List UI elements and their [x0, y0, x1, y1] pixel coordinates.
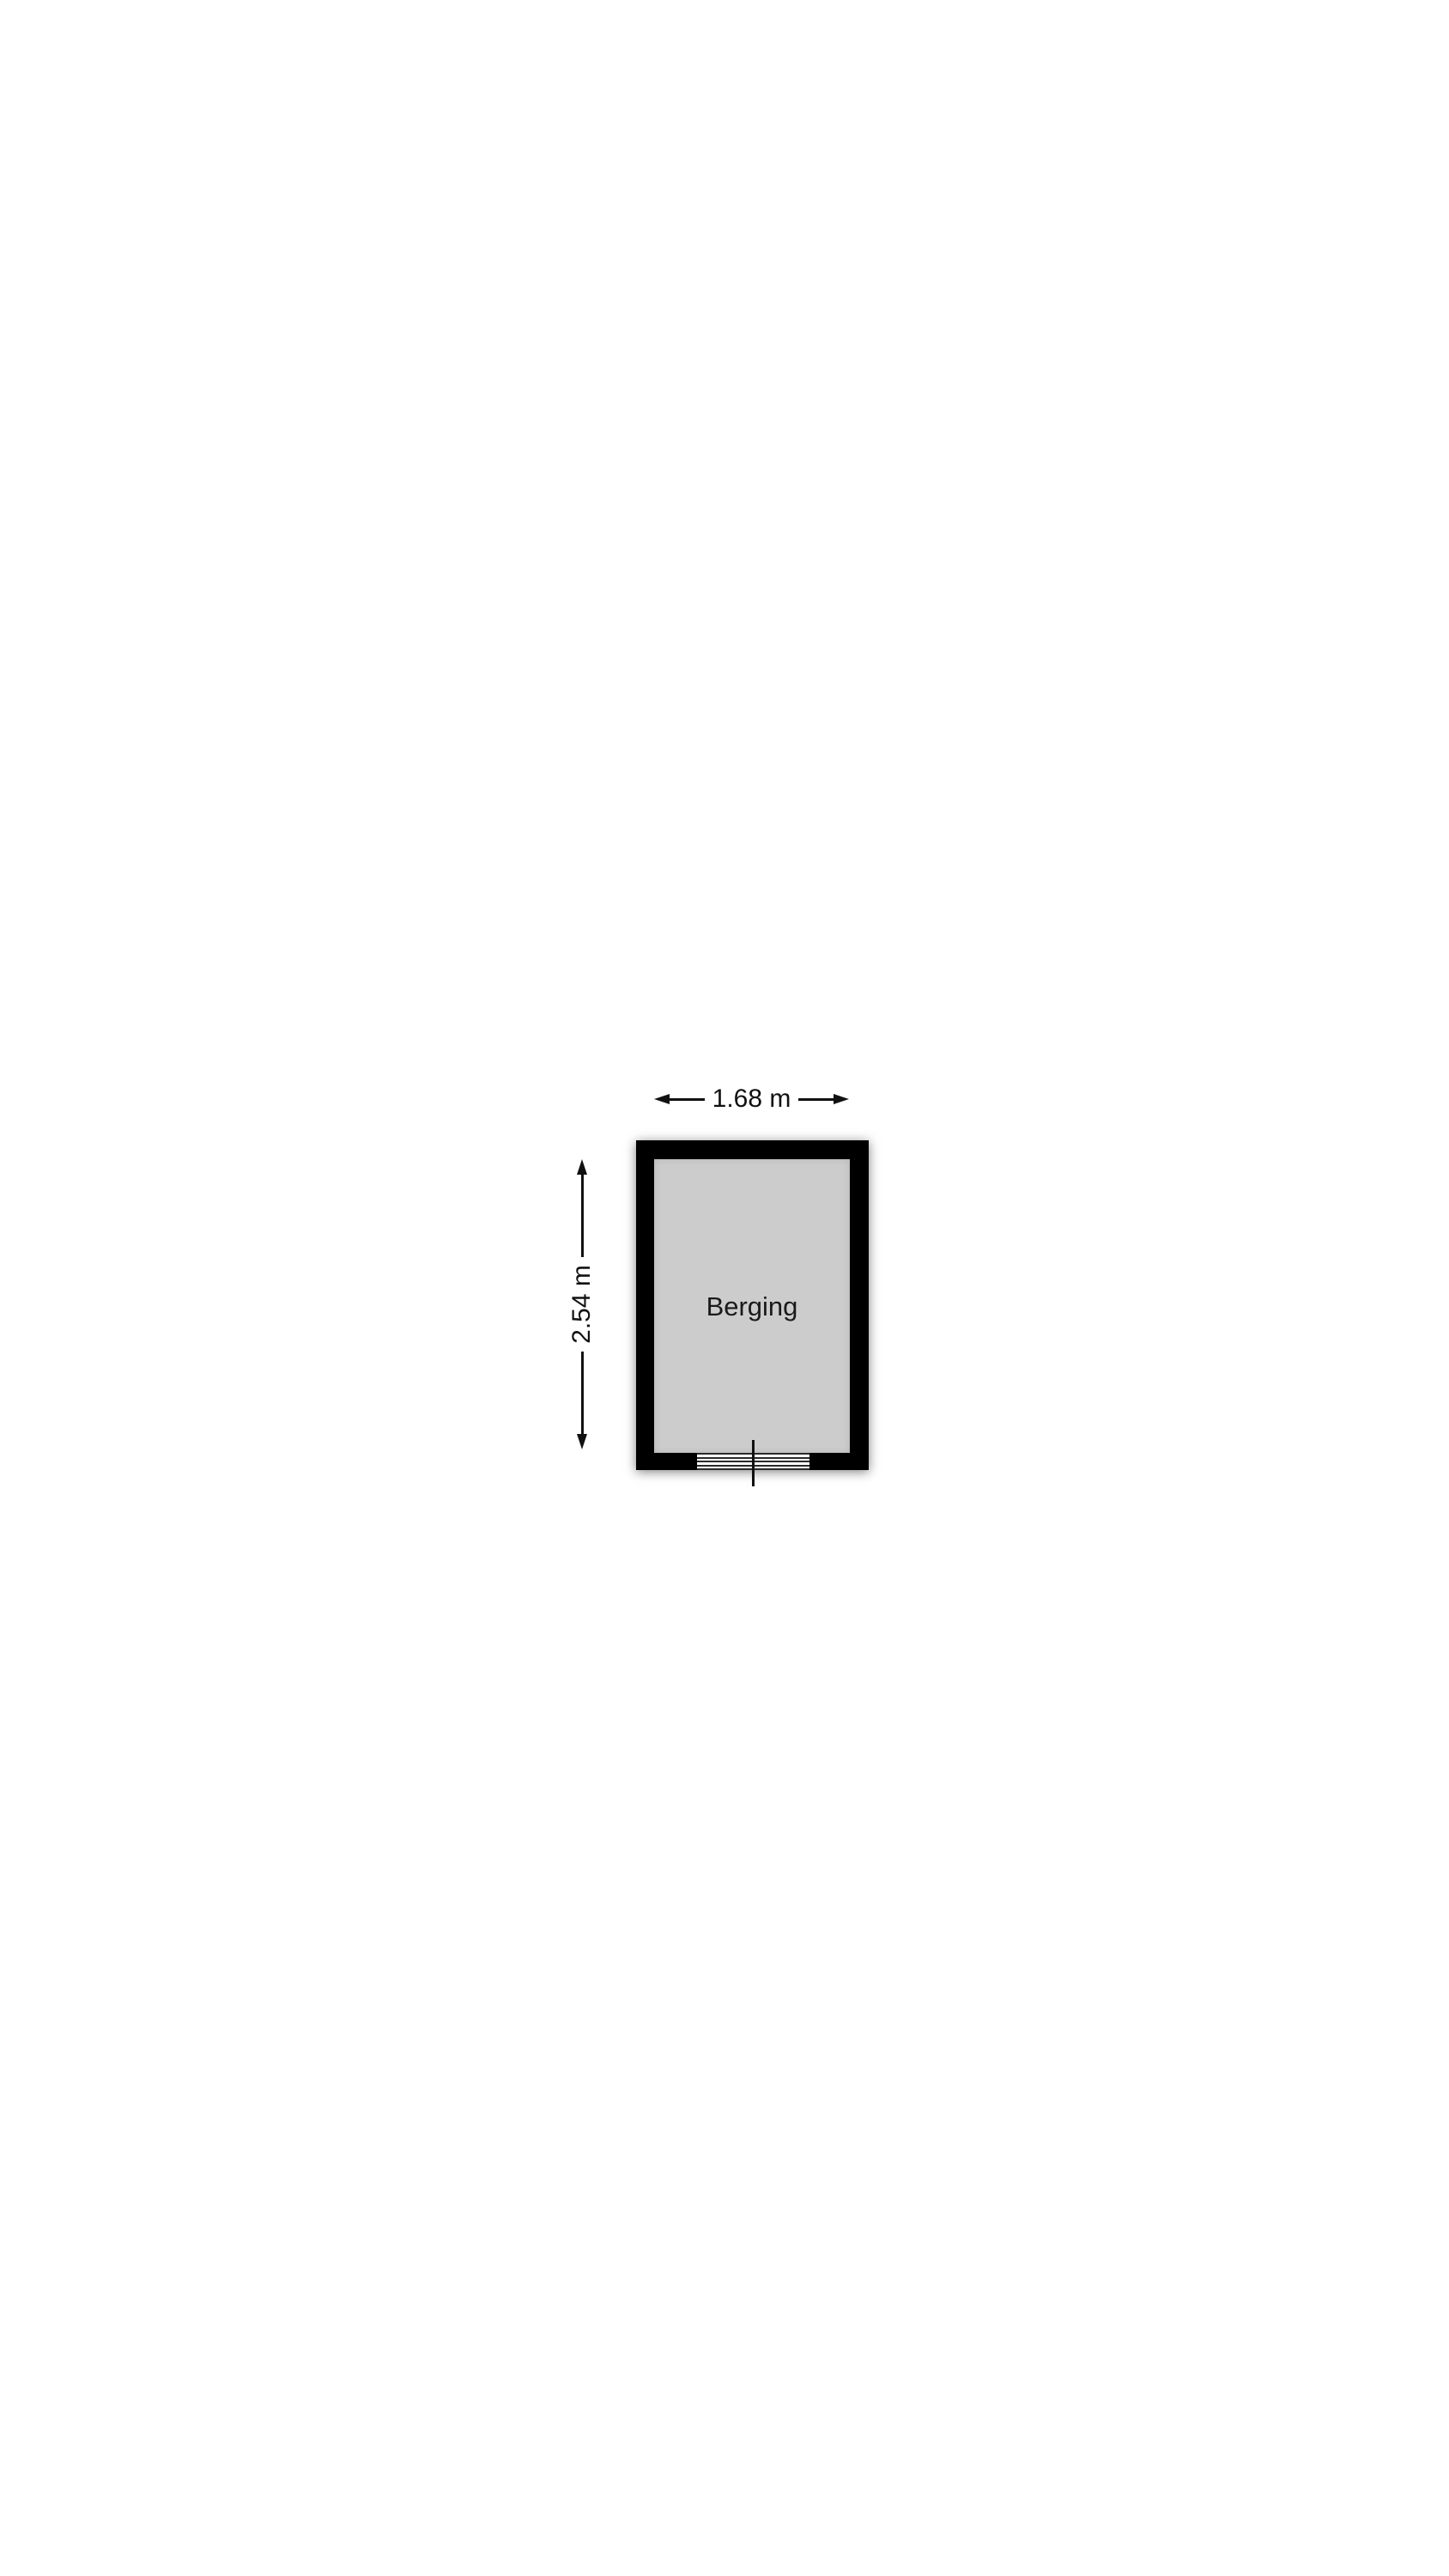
dimension-line-segment	[581, 1352, 584, 1434]
room-berging: Berging	[636, 1140, 869, 1470]
height-dimension-label: 2.54 m	[569, 1265, 595, 1344]
arrow-right-icon	[834, 1094, 849, 1104]
door-center-line	[752, 1440, 755, 1486]
width-dimension-label: 1.68 m	[705, 1086, 799, 1112]
arrow-down-icon	[577, 1434, 587, 1449]
dimension-line-segment	[670, 1098, 705, 1101]
floorplan-canvas: 1.68 m 2.54 m Berging	[0, 0, 1449, 2576]
room-floor: Berging	[654, 1159, 850, 1453]
width-dimension: 1.68 m	[654, 1086, 849, 1112]
dimension-line-segment	[581, 1175, 584, 1257]
page: { "floorplan": { "room": { "label": "Ber…	[0, 0, 1449, 2576]
arrow-left-icon	[654, 1094, 670, 1104]
height-dimension-label-wrap: 2.54 m	[570, 1257, 594, 1352]
arrow-up-icon	[577, 1159, 587, 1175]
room-label: Berging	[706, 1293, 798, 1320]
dimension-line-segment	[798, 1098, 834, 1101]
height-dimension: 2.54 m	[570, 1159, 594, 1449]
